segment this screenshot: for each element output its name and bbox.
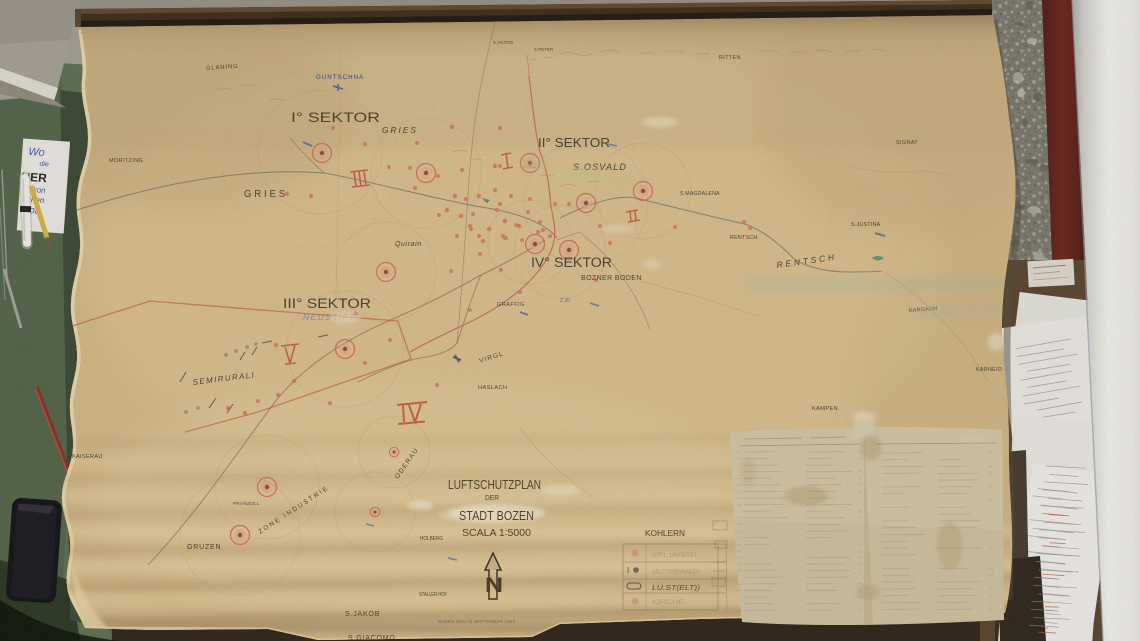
svg-text:S.JUSTINA: S.JUSTINA: [851, 222, 881, 228]
svg-text:LU.ST(ELT)): LU.ST(ELT)): [652, 583, 701, 592]
svg-text:PRANZOLL: PRANZOLL: [233, 501, 260, 506]
svg-text:RENTSCH: RENTSCH: [730, 235, 757, 241]
svg-text:GRIES: GRIES: [382, 126, 418, 135]
svg-text:BOZEN DEN 23 SEPTEMBER 1943: BOZEN DEN 23 SEPTEMBER 1943: [438, 619, 515, 624]
svg-text:GUNTSCHNA: GUNTSCHNA: [316, 74, 364, 81]
svg-text:S MAGDALENA: S MAGDALENA: [680, 191, 720, 197]
svg-text:Quirain: Quirain: [395, 241, 422, 248]
svg-text:LUFTSCHUTZPLAN: LUFTSCHUTZPLAN: [448, 477, 541, 492]
svg-text:GRIES: GRIES: [244, 189, 288, 200]
svg-text:RITTEN: RITTEN: [719, 55, 741, 61]
svg-text:HOLBERG: HOLBERG: [420, 536, 443, 542]
svg-text:IV° SEKTOR: IV° SEKTOR: [531, 255, 612, 270]
svg-text:KAISERAU: KAISERAU: [72, 454, 103, 460]
svg-text:Z 20: Z 20: [560, 298, 570, 304]
svg-text:S.ANTON: S.ANTON: [493, 40, 513, 45]
svg-text:KIRCHE: KIRCHE: [652, 599, 684, 606]
svg-text:S.JAKOB: S.JAKOB: [345, 611, 380, 618]
svg-text:Wo: Wo: [28, 146, 45, 159]
svg-text:KOHLERN: KOHLERN: [645, 529, 685, 538]
svg-text:STALLER·HOF: STALLER·HOF: [419, 592, 447, 598]
svg-text:SPLITTERGRÄBEN: SPLITTERGRÄBEN: [652, 569, 700, 576]
svg-text:STADT BOZEN: STADT BOZEN: [459, 508, 534, 523]
svg-text:N: N: [485, 574, 503, 597]
svg-text:S.PETER: S.PETER: [534, 47, 553, 52]
svg-text:die: die: [39, 161, 49, 169]
svg-text:III° SEKTOR: III° SEKTOR: [283, 296, 371, 311]
svg-text:SIGNAT: SIGNAT: [896, 140, 918, 146]
svg-text:KAMPEN: KAMPEN: [812, 406, 838, 412]
svg-text:SCALA 1∶5000: SCALA 1∶5000: [462, 528, 531, 539]
svg-text:I° SEKTOR: I° SEKTOR: [291, 109, 380, 125]
svg-text:I: I: [627, 566, 629, 575]
svg-text:GRAFFIG: GRAFFIG: [497, 302, 525, 308]
svg-text:MORITZING: MORITZING: [109, 158, 143, 164]
svg-text:GRUZEN: GRUZEN: [187, 544, 221, 551]
svg-text:HASLACH: HASLACH: [478, 385, 507, 391]
svg-text:KARNEID: KARNEID: [976, 367, 1002, 373]
svg-text:DER: DER: [485, 495, 499, 502]
svg-text:BOZNER BODEN: BOZNER BODEN: [581, 275, 642, 282]
svg-text:II° SEKTOR: II° SEKTOR: [538, 135, 610, 150]
svg-text:ÖFFL. UNTERST.: ÖFFL. UNTERST.: [652, 552, 698, 559]
